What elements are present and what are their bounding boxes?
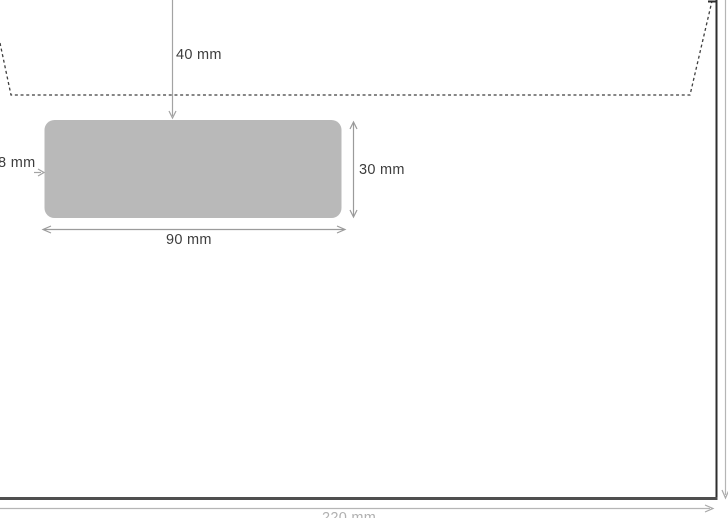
envelope-diagram: 40 mm 8 mm 30 mm 90 mm 220 mm	[0, 0, 728, 518]
top-offset-arrow	[169, 0, 176, 118]
envelope-diagram-linework	[0, 0, 728, 518]
envelope-width-label: 220 mm	[322, 511, 376, 518]
top-offset-label: 40 mm	[176, 48, 222, 64]
envelope-height-arrow	[722, 0, 728, 498]
window-width-label: 90 mm	[166, 233, 212, 249]
flap-fold-dashed-line	[0, 1, 712, 95]
window-height-label: 30 mm	[359, 163, 405, 179]
left-offset-label: 8 mm	[0, 156, 35, 172]
window-height-arrow	[350, 122, 357, 217]
address-window	[45, 120, 342, 218]
left-offset-arrow	[34, 169, 44, 176]
